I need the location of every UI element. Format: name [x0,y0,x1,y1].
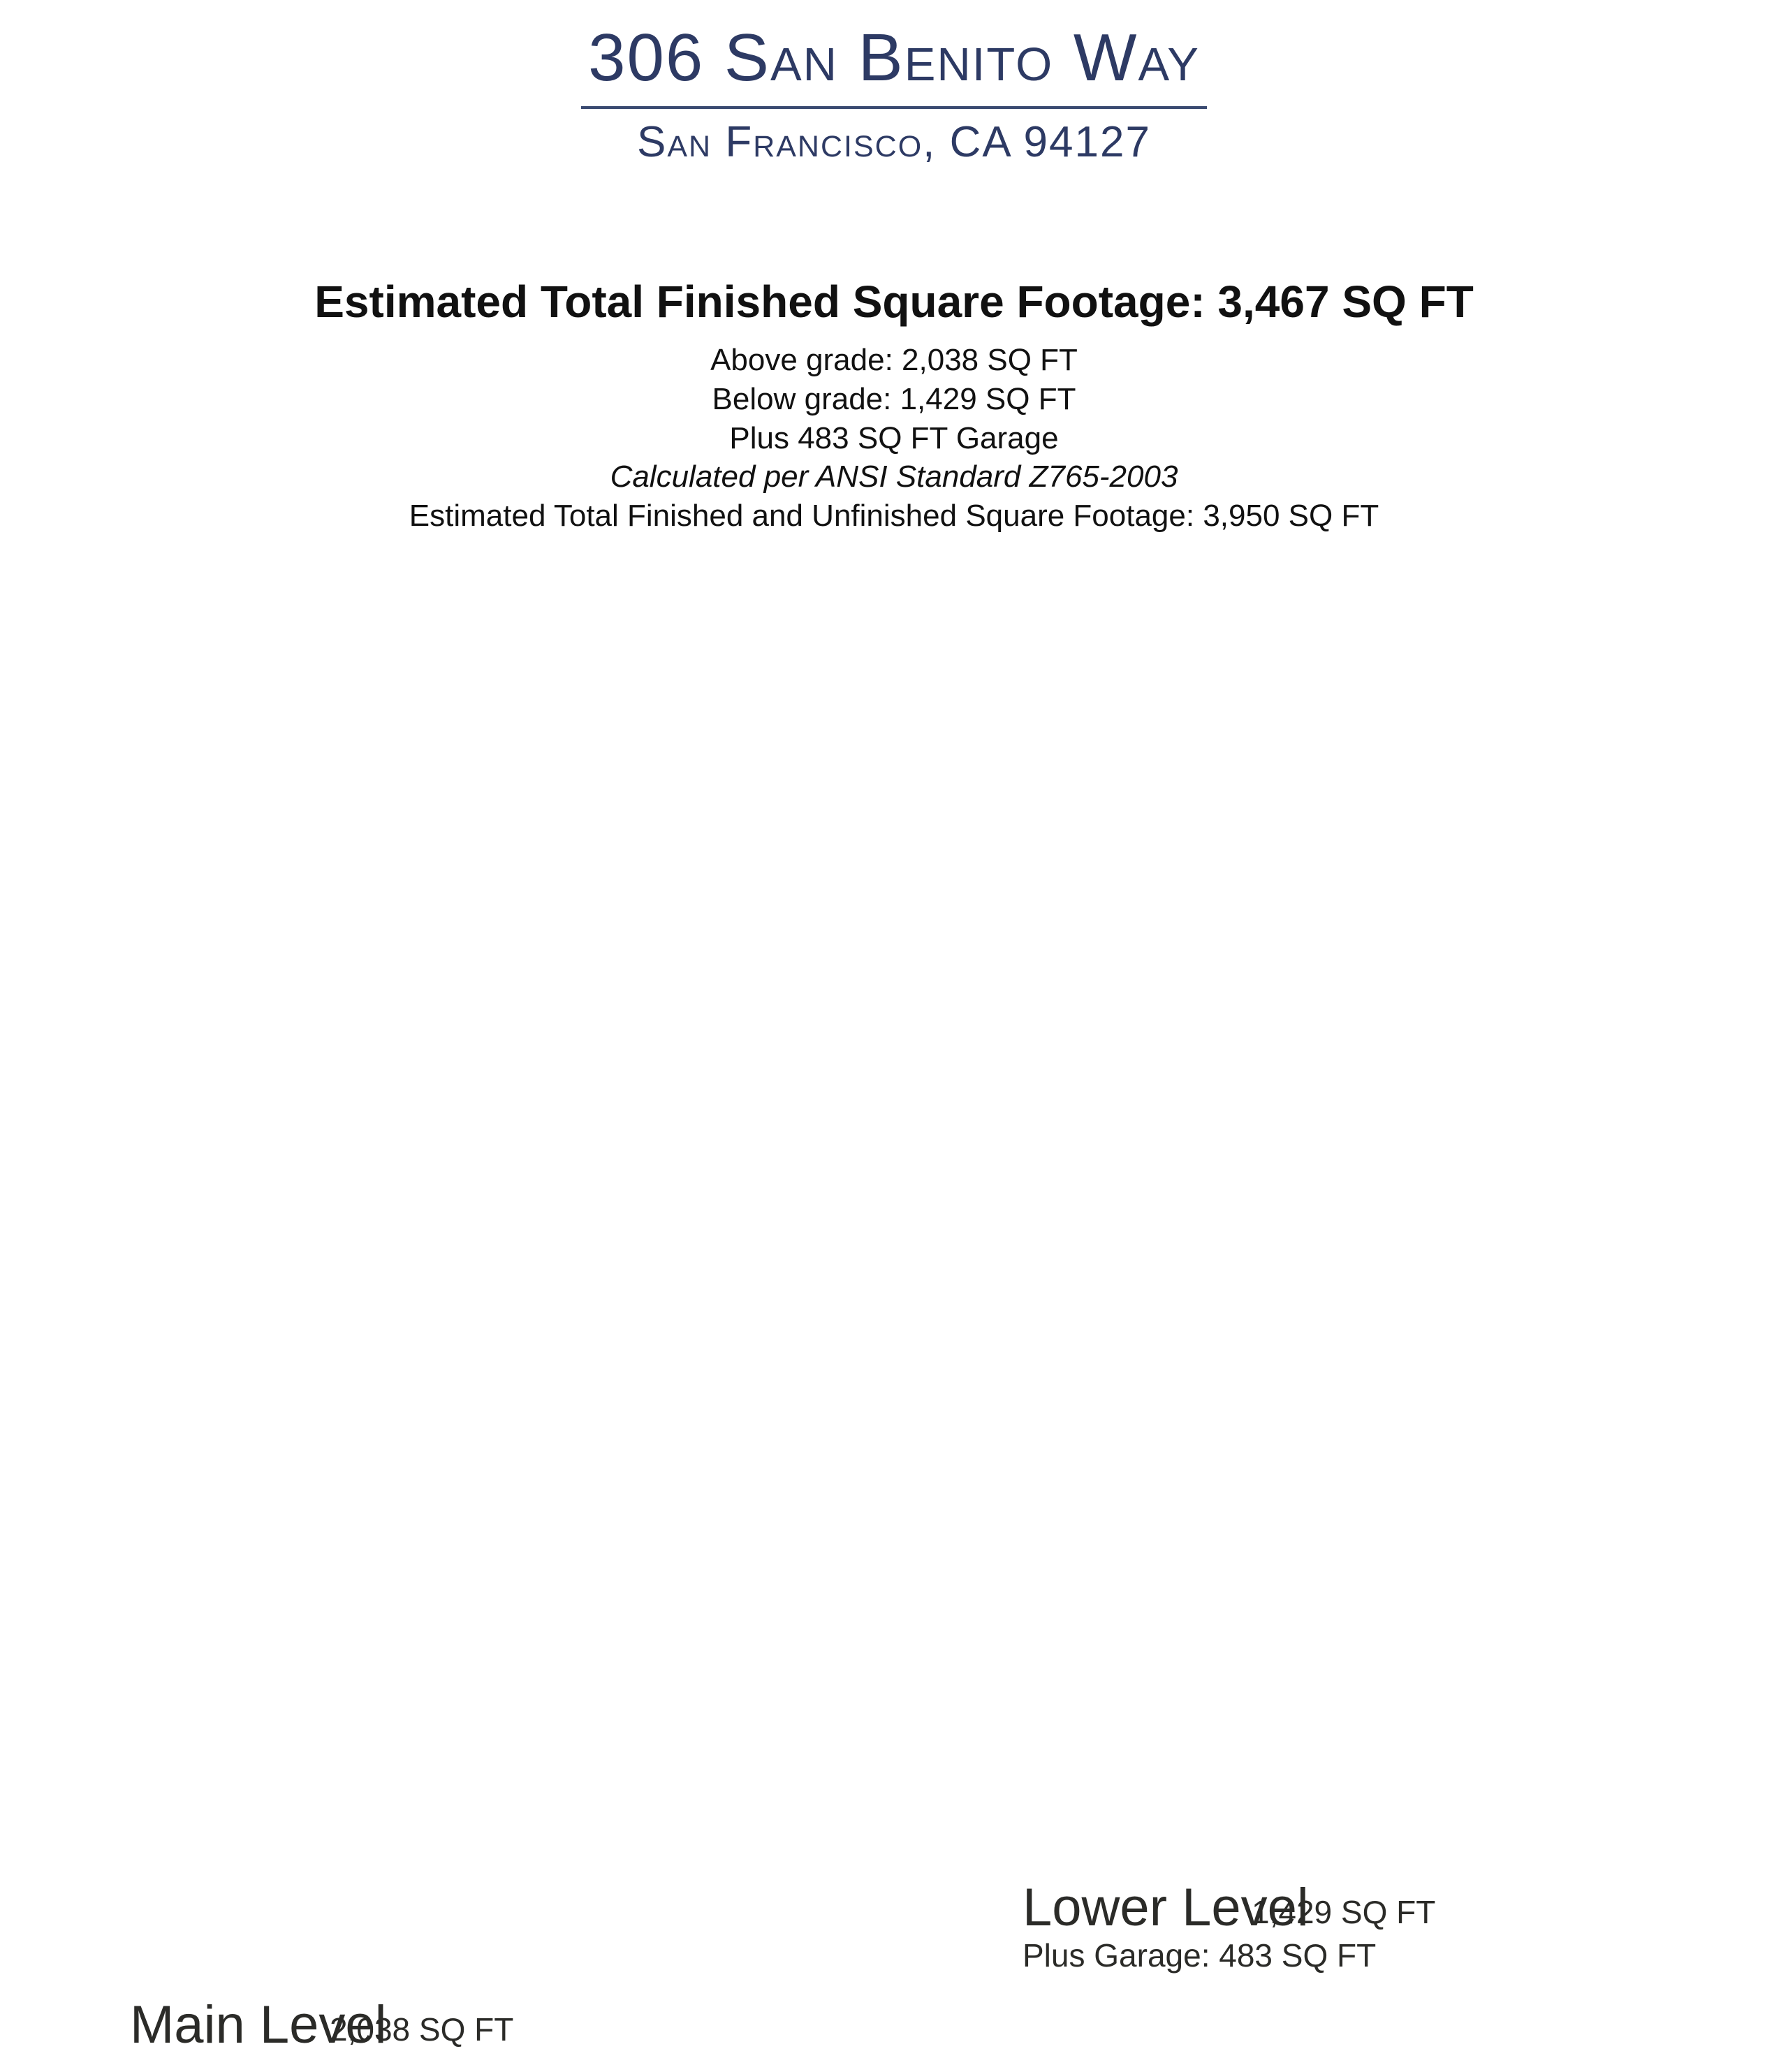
svg-text:Plus Garage: 483 SQ FT: Plus Garage: 483 SQ FT [1023,1937,1376,1974]
svg-text:1,429 SQ FT: 1,429 SQ FT [1252,1894,1435,1930]
svg-text:2,038 SQ FT: 2,038 SQ FT [330,2011,513,2048]
